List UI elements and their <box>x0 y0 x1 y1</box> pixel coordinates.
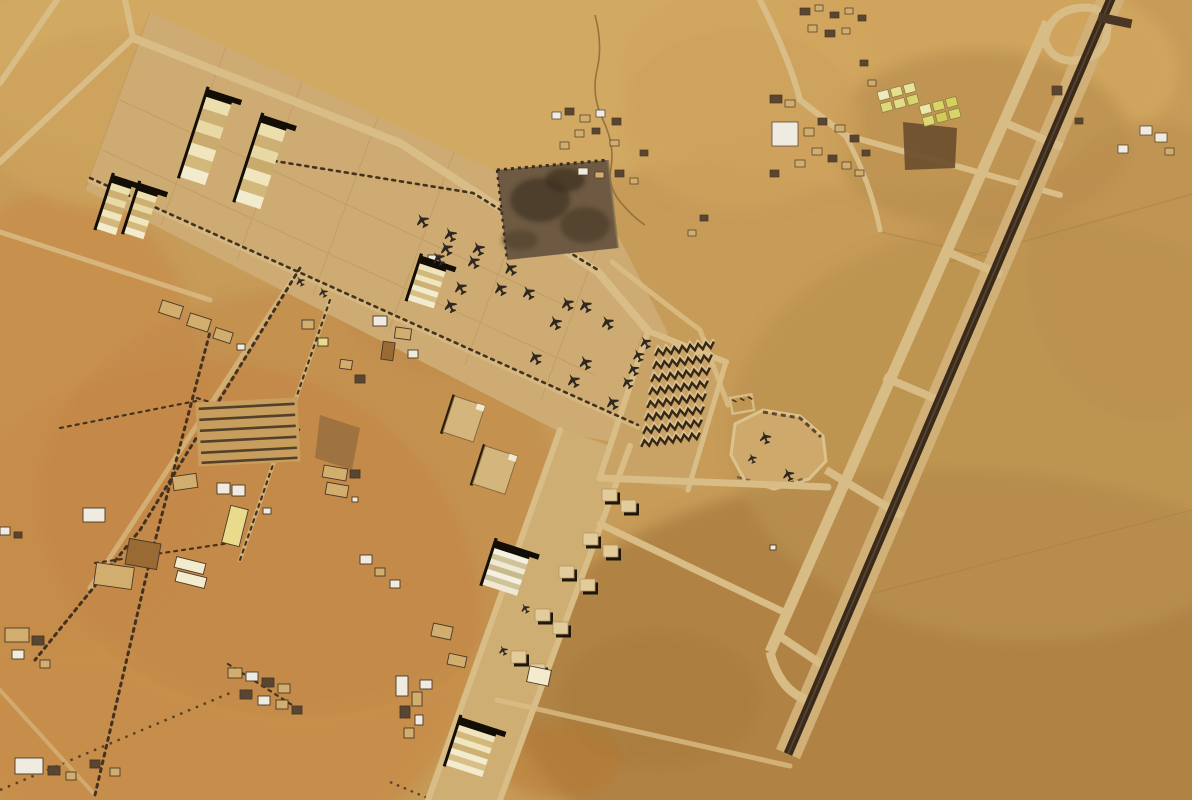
building <box>565 108 574 115</box>
building <box>408 350 418 358</box>
building <box>381 341 395 360</box>
building <box>1165 148 1174 155</box>
building <box>862 150 870 156</box>
building <box>830 12 839 18</box>
building <box>770 95 782 103</box>
building <box>420 680 432 689</box>
building <box>578 168 588 175</box>
building <box>580 115 590 122</box>
building <box>375 568 385 576</box>
building <box>276 700 288 709</box>
building <box>66 772 76 780</box>
building <box>800 8 810 15</box>
building <box>339 359 352 370</box>
building <box>262 678 274 687</box>
building <box>860 60 868 66</box>
building <box>835 125 845 132</box>
dark-field <box>903 122 957 170</box>
building <box>845 8 853 14</box>
building <box>688 230 696 236</box>
building <box>360 555 372 564</box>
building <box>263 508 271 514</box>
building <box>400 706 410 718</box>
building <box>868 80 876 86</box>
building <box>1155 133 1167 142</box>
building <box>825 30 835 37</box>
building <box>5 628 29 642</box>
building <box>842 28 850 34</box>
building <box>258 696 270 705</box>
building <box>770 170 779 177</box>
building <box>396 676 408 696</box>
building <box>1140 126 1152 135</box>
building <box>110 768 120 776</box>
building <box>795 160 805 167</box>
building <box>0 527 10 535</box>
satellite-image <box>0 0 1200 800</box>
building <box>808 25 817 32</box>
building <box>858 15 866 21</box>
building <box>394 327 411 340</box>
building <box>615 170 624 177</box>
building <box>237 344 245 350</box>
building <box>592 128 600 134</box>
building <box>12 650 24 659</box>
building <box>40 660 50 668</box>
building <box>812 148 822 155</box>
building <box>815 5 823 11</box>
building <box>48 766 60 775</box>
building <box>560 142 569 149</box>
building <box>804 128 814 136</box>
building <box>90 760 100 768</box>
building <box>596 110 605 117</box>
building <box>318 338 328 346</box>
building <box>125 538 161 569</box>
building <box>14 532 22 538</box>
building <box>412 692 422 706</box>
building <box>172 473 198 490</box>
building <box>640 150 648 156</box>
building <box>246 672 258 681</box>
building <box>15 758 43 774</box>
building <box>610 140 619 146</box>
building <box>390 580 400 588</box>
building <box>83 508 105 522</box>
building <box>240 690 252 699</box>
building <box>630 178 638 184</box>
building <box>302 320 314 329</box>
building <box>292 706 302 714</box>
building <box>855 170 864 176</box>
building <box>404 728 414 738</box>
building <box>32 636 44 645</box>
building <box>770 545 776 550</box>
building <box>415 715 423 725</box>
building <box>785 100 795 107</box>
building <box>278 684 290 693</box>
building <box>350 470 360 478</box>
building <box>850 135 859 142</box>
building <box>842 162 851 169</box>
building <box>818 118 827 125</box>
building <box>352 497 358 502</box>
building <box>228 668 242 678</box>
building <box>1075 118 1083 124</box>
photo-border-strip <box>1192 0 1200 800</box>
satellite-screenshot <box>0 0 1200 800</box>
building <box>575 130 584 137</box>
building <box>217 483 230 494</box>
building <box>1118 145 1128 153</box>
building <box>373 316 387 326</box>
building <box>595 172 604 178</box>
building <box>552 112 561 119</box>
building <box>1052 86 1062 95</box>
building <box>700 215 708 221</box>
building <box>612 118 621 125</box>
building <box>772 122 798 146</box>
building <box>232 485 245 496</box>
building <box>94 562 135 589</box>
row-sheds-block <box>195 397 300 466</box>
building <box>828 155 837 162</box>
building <box>355 375 365 383</box>
